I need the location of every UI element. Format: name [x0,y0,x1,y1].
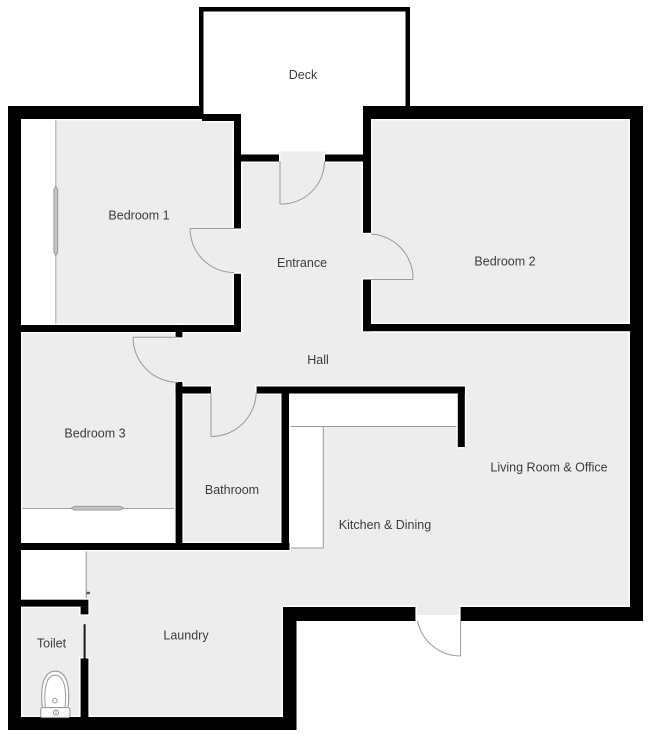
svg-text:Deck: Deck [289,68,318,82]
svg-text:Bedroom 1: Bedroom 1 [108,209,169,223]
svg-text:Bathroom: Bathroom [205,483,259,497]
svg-text:Hall: Hall [307,353,329,367]
svg-text:Kitchen & Dining: Kitchen & Dining [339,518,431,532]
svg-text:Bedroom 3: Bedroom 3 [64,427,125,441]
svg-text:Toilet: Toilet [37,637,67,651]
svg-text:Bedroom 2: Bedroom 2 [474,255,535,269]
svg-text:Laundry: Laundry [163,629,209,643]
svg-text:Entrance: Entrance [277,256,327,270]
svg-text:Living Room & Office: Living Room & Office [490,461,607,475]
